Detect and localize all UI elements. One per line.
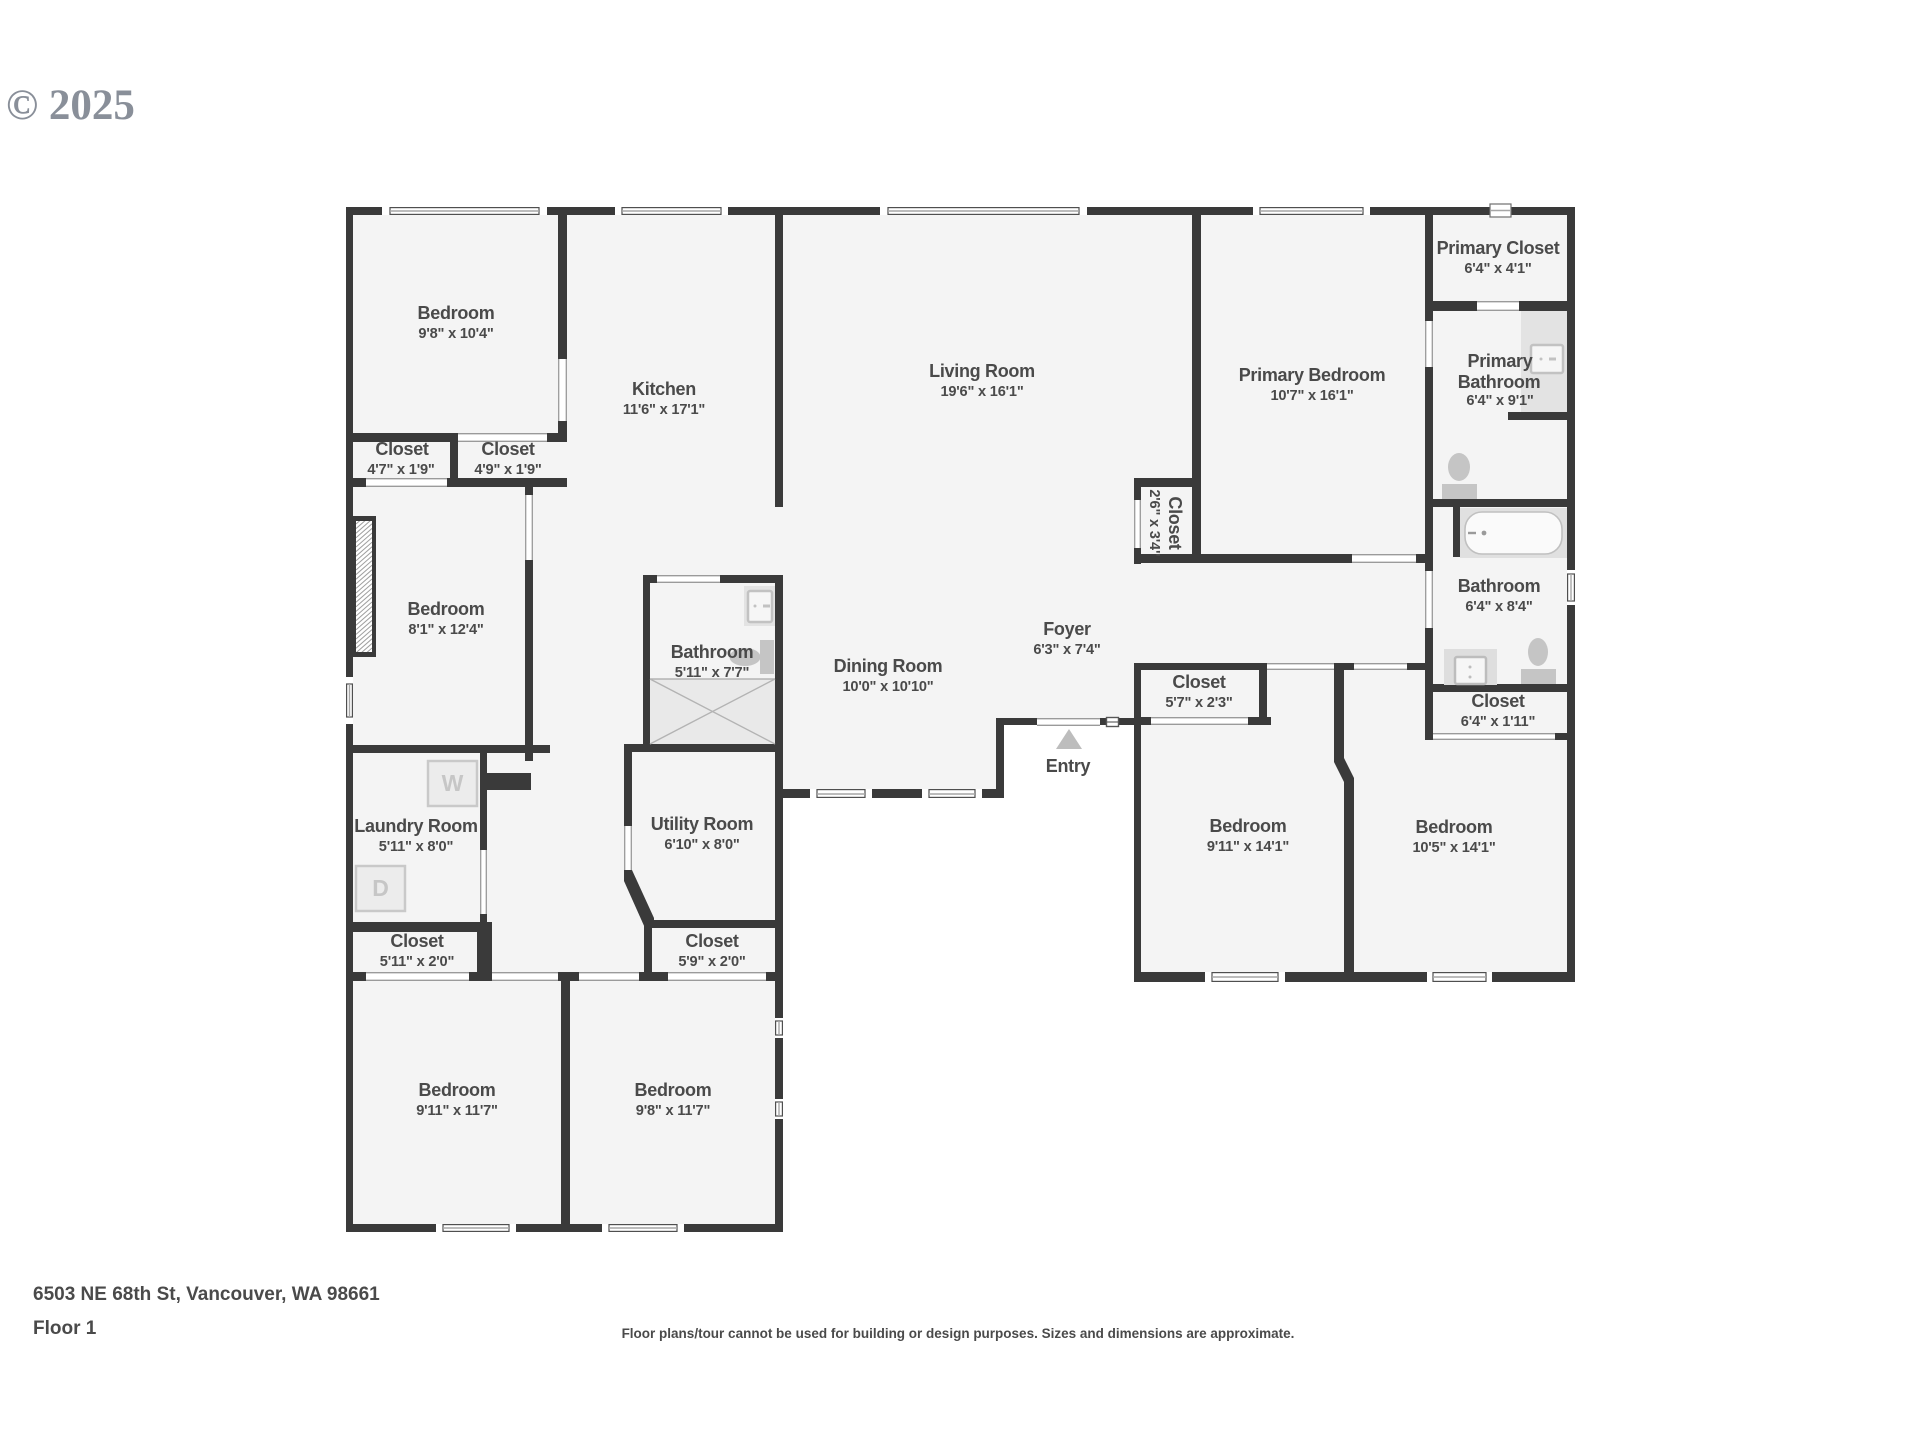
svg-text:Kitchen: Kitchen [632,379,696,399]
svg-text:Floor plans/tour cannot be use: Floor plans/tour cannot be used for buil… [622,1326,1295,1341]
svg-text:6'4" x 4'1": 6'4" x 4'1" [1464,261,1531,277]
svg-text:Bathroom: Bathroom [671,642,754,662]
svg-text:6'3" x 7'4": 6'3" x 7'4" [1033,642,1100,658]
svg-text:5'11" x 2'0": 5'11" x 2'0" [380,954,454,970]
svg-text:11'6" x 17'1": 11'6" x 17'1" [623,402,705,418]
svg-text:9'8" x 10'4": 9'8" x 10'4" [418,326,493,342]
svg-text:Bathroom: Bathroom [1458,372,1541,392]
svg-text:Closet: Closet [390,931,444,951]
svg-text:9'8" x 11'7": 9'8" x 11'7" [636,1103,710,1119]
svg-text:9'11" x 14'1": 9'11" x 14'1" [1207,839,1289,855]
svg-text:10'7" x 16'1": 10'7" x 16'1" [1270,388,1353,404]
svg-text:10'0" x 10'10": 10'0" x 10'10" [842,679,933,695]
svg-text:Foyer: Foyer [1043,619,1091,639]
svg-text:5'11" x 7'7": 5'11" x 7'7" [675,665,749,681]
svg-text:D: D [372,875,389,901]
svg-text:Bedroom: Bedroom [408,599,485,619]
svg-text:Laundry Room: Laundry Room [354,816,477,836]
svg-text:Primary Closet: Primary Closet [1437,238,1560,258]
svg-text:2'6" x 3'4": 2'6" x 3'4" [1146,489,1162,556]
svg-text:8'1" x 12'4": 8'1" x 12'4" [408,622,483,638]
svg-text:6'4" x 9'1": 6'4" x 9'1" [1466,393,1533,409]
svg-text:10'5" x 14'1": 10'5" x 14'1" [1412,840,1495,856]
svg-text:Primary: Primary [1468,351,1533,371]
svg-text:Bedroom: Bedroom [418,303,495,323]
svg-text:Entry: Entry [1046,756,1091,776]
svg-text:5'11" x 8'0": 5'11" x 8'0" [379,839,453,855]
svg-text:6'4" x 1'11": 6'4" x 1'11" [1461,714,1535,730]
svg-text:Dining Room: Dining Room [834,656,943,676]
svg-text:5'9" x 2'0": 5'9" x 2'0" [678,954,745,970]
svg-text:Bathroom: Bathroom [1458,576,1541,596]
svg-text:9'11" x 11'7": 9'11" x 11'7" [416,1103,498,1119]
svg-text:Bedroom: Bedroom [1210,816,1287,836]
svg-text:19'6" x 16'1": 19'6" x 16'1" [940,384,1023,400]
svg-text:W: W [442,770,464,796]
svg-text:Closet: Closet [1471,691,1525,711]
svg-text:© 2025: © 2025 [6,82,135,129]
svg-text:Bedroom: Bedroom [419,1080,496,1100]
svg-text:Closet: Closet [375,439,429,459]
svg-text:Closet: Closet [1172,672,1226,692]
svg-text:Closet: Closet [481,439,535,459]
svg-text:6503 NE 68th St, Vancouver, WA: 6503 NE 68th St, Vancouver, WA 98661 [33,1284,380,1305]
svg-text:5'7" x 2'3": 5'7" x 2'3" [1165,695,1232,711]
svg-text:6'10" x 8'0": 6'10" x 8'0" [664,837,739,853]
svg-text:6'4" x 8'4": 6'4" x 8'4" [1465,599,1532,615]
svg-text:Bedroom: Bedroom [1416,817,1493,837]
svg-text:4'7" x 1'9": 4'7" x 1'9" [367,462,434,478]
svg-text:Bedroom: Bedroom [635,1080,712,1100]
svg-text:Primary Bedroom: Primary Bedroom [1239,365,1386,385]
svg-text:4'9" x 1'9": 4'9" x 1'9" [474,462,541,478]
svg-text:Utility Room: Utility Room [651,814,753,834]
svg-text:Closet: Closet [1165,496,1185,550]
svg-text:Closet: Closet [685,931,739,951]
svg-text:Living Room: Living Room [929,361,1035,381]
svg-text:Floor 1: Floor 1 [33,1318,97,1339]
